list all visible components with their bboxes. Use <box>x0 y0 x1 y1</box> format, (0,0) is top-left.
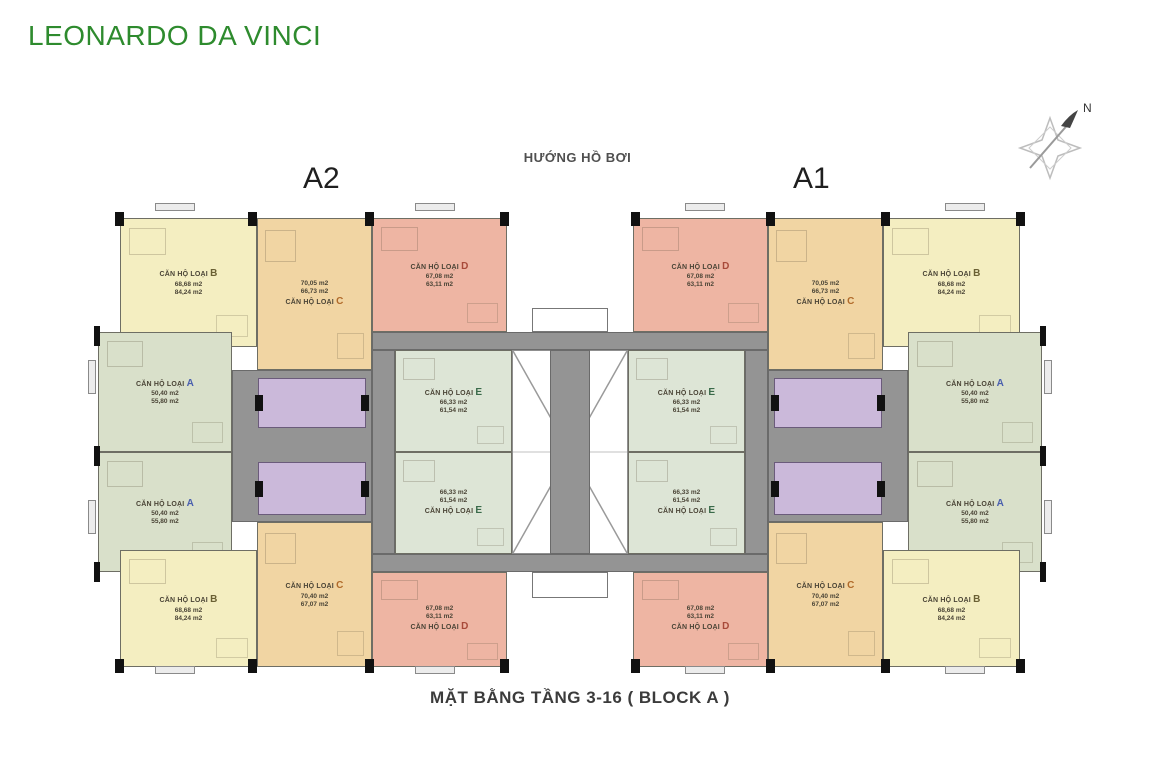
unit-a2-b-bot: CĂN HỘ LOẠI B 68,68 m2 84,24 m2 <box>120 550 257 667</box>
unit-area-1: 66,33 m2 <box>440 489 467 497</box>
unit-a2-d-top: CĂN HỘ LOẠI D 67,08 m2 63,11 m2 <box>372 218 507 332</box>
unit-area-2: 67,07 m2 <box>301 601 328 609</box>
unit-area-2: 84,24 m2 <box>938 289 965 297</box>
unit-type-label: CĂN HỘ LOẠI E <box>425 505 483 518</box>
core-right-upper <box>774 378 882 428</box>
unit-type-label: CĂN HỘ LOẠI C <box>796 580 854 593</box>
balcony-tab <box>415 203 455 211</box>
unit-area-2: 84,24 m2 <box>175 289 202 297</box>
unit-area-1: 50,40 m2 <box>961 510 988 518</box>
unit-area-2: 67,07 m2 <box>812 601 839 609</box>
core-left-upper <box>258 378 366 428</box>
unit-area-1: 70,40 m2 <box>301 593 328 601</box>
column-marker <box>881 659 890 673</box>
core-right-lower <box>774 462 882 515</box>
unit-type-label: CĂN HỘ LOẠI E <box>658 505 716 518</box>
unit-area-1: 50,40 m2 <box>151 510 178 518</box>
plan-caption: MẶT BẰNG TẦNG 3-16 ( BLOCK A ) <box>0 688 1160 708</box>
unit-type-label: CĂN HỘ LOẠI E <box>425 387 483 400</box>
unit-area-2: 84,24 m2 <box>175 615 202 623</box>
pool-direction-label: HƯỚNG HỒ BƠI <box>460 150 695 165</box>
bridge-room-bottom <box>532 572 608 598</box>
bridge-walkway <box>550 350 590 554</box>
unit-type-label: CĂN HỘ LOẠI B <box>922 268 980 281</box>
column-marker <box>1016 212 1025 226</box>
unit-a1-b-bot: CĂN HỘ LOẠI B 68,68 m2 84,24 m2 <box>883 550 1020 667</box>
unit-a1-e-bot: CĂN HỘ LOẠI E 66,33 m2 61,54 m2 <box>628 452 745 554</box>
unit-a1-d-bot: CĂN HỘ LOẠI D 67,08 m2 63,11 m2 <box>633 572 768 667</box>
column-marker <box>1040 446 1046 466</box>
column-marker <box>1040 562 1046 582</box>
core-left-lower <box>258 462 366 515</box>
unit-area-2: 63,11 m2 <box>687 613 714 621</box>
corridor-vertical-right <box>745 350 768 554</box>
unit-type-label: CĂN HỘ LOẠI D <box>671 621 729 634</box>
unit-a2-b-top: CĂN HỘ LOẠI B 68,68 m2 84,24 m2 <box>120 218 257 347</box>
unit-area-1: 67,08 m2 <box>687 273 714 281</box>
unit-area-1: 66,33 m2 <box>440 399 467 407</box>
unit-a2-e-top: CĂN HỘ LOẠI E 66,33 m2 61,54 m2 <box>395 350 512 452</box>
column-marker <box>500 659 509 673</box>
balcony-tab <box>945 203 985 211</box>
balcony-tab <box>88 360 96 394</box>
unit-area-2: 61,54 m2 <box>673 497 700 505</box>
unit-a1-d-top: CĂN HỘ LOẠI D 67,08 m2 63,11 m2 <box>633 218 768 332</box>
unit-type-label: CĂN HỘ LOẠI A <box>136 378 194 391</box>
column-marker <box>365 659 374 673</box>
compass-north-letter: N <box>1083 101 1092 115</box>
block-a1-label: A1 <box>793 162 830 196</box>
column-marker <box>766 659 775 673</box>
unit-area-1: 70,05 m2 <box>301 280 328 288</box>
unit-area-2: 55,80 m2 <box>151 518 178 526</box>
bridge-room-top <box>532 308 608 332</box>
column-marker <box>1040 326 1046 346</box>
unit-area-2: 61,54 m2 <box>440 407 467 415</box>
column-marker <box>500 212 509 226</box>
unit-type-label: CĂN HỘ LOẠI E <box>658 387 716 400</box>
unit-area-2: 61,54 m2 <box>673 407 700 415</box>
unit-a2-c-top: CĂN HỘ LOẠI C 70,05 m2 66,73 m2 <box>257 218 372 370</box>
unit-area-2: 63,11 m2 <box>426 281 453 289</box>
unit-type-label: CĂN HỘ LOẠI D <box>410 261 468 274</box>
unit-area-1: 67,08 m2 <box>426 605 453 613</box>
balcony-tab <box>155 203 195 211</box>
unit-area-1: 68,68 m2 <box>938 607 965 615</box>
column-marker <box>248 212 257 226</box>
unit-area-2: 55,80 m2 <box>151 398 178 406</box>
block-a2-label: A2 <box>303 162 340 196</box>
unit-a2-c-bot: CĂN HỘ LOẠI C 70,40 m2 67,07 m2 <box>257 522 372 667</box>
balcony-tab <box>1044 360 1052 394</box>
unit-area-1: 70,40 m2 <box>812 593 839 601</box>
unit-area-2: 84,24 m2 <box>938 615 965 623</box>
unit-area-1: 50,40 m2 <box>151 390 178 398</box>
unit-area-1: 70,05 m2 <box>812 280 839 288</box>
balcony-tab <box>685 666 725 674</box>
unit-area-1: 68,68 m2 <box>175 281 202 289</box>
unit-a1-a-top: CĂN HỘ LOẠI A 50,40 m2 55,80 m2 <box>908 332 1042 452</box>
unit-a2-e-bot: CĂN HỘ LOẠI E 66,33 m2 61,54 m2 <box>395 452 512 554</box>
unit-area-2: 55,80 m2 <box>961 518 988 526</box>
unit-type-label: CĂN HỘ LOẠI D <box>671 261 729 274</box>
unit-type-label: CĂN HỘ LOẠI B <box>159 268 217 281</box>
compass-icon: N <box>1000 96 1110 186</box>
unit-area-2: 66,73 m2 <box>812 288 839 296</box>
unit-a1-e-top: CĂN HỘ LOẠI E 66,33 m2 61,54 m2 <box>628 350 745 452</box>
unit-a2-d-bot: CĂN HỘ LOẠI D 67,08 m2 63,11 m2 <box>372 572 507 667</box>
column-marker <box>881 212 890 226</box>
unit-a1-c-bot: CĂN HỘ LOẠI C 70,40 m2 67,07 m2 <box>768 522 883 667</box>
column-marker <box>631 212 640 226</box>
unit-area-1: 66,33 m2 <box>673 489 700 497</box>
unit-a2-a-top: CĂN HỘ LOẠI A 50,40 m2 55,80 m2 <box>98 332 232 452</box>
unit-type-label: CĂN HỘ LOẠI C <box>285 296 343 309</box>
unit-type-label: CĂN HỘ LOẠI A <box>946 498 1004 511</box>
unit-area-2: 61,54 m2 <box>440 497 467 505</box>
unit-a1-b-top: CĂN HỘ LOẠI B 68,68 m2 84,24 m2 <box>883 218 1020 347</box>
unit-area-1: 68,68 m2 <box>175 607 202 615</box>
unit-type-label: CĂN HỘ LOẠI D <box>410 621 468 634</box>
unit-type-label: CĂN HỘ LOẠI B <box>922 594 980 607</box>
unit-a1-c-top: CĂN HỘ LOẠI C 70,05 m2 66,73 m2 <box>768 218 883 370</box>
page-title: LEONARDO DA VINCI <box>28 20 321 52</box>
unit-area-1: 67,08 m2 <box>426 273 453 281</box>
unit-area-1: 50,40 m2 <box>961 390 988 398</box>
unit-area-1: 67,08 m2 <box>687 605 714 613</box>
column-marker <box>94 326 100 346</box>
unit-area-2: 63,11 m2 <box>687 281 714 289</box>
unit-type-label: CĂN HỘ LOẠI A <box>946 378 1004 391</box>
balcony-tab <box>685 203 725 211</box>
balcony-tab <box>1044 500 1052 534</box>
column-marker <box>115 659 124 673</box>
unit-type-label: CĂN HỘ LOẠI B <box>159 594 217 607</box>
unit-type-label: CĂN HỘ LOẠI C <box>285 580 343 593</box>
balcony-tab <box>155 666 195 674</box>
unit-area-2: 55,80 m2 <box>961 398 988 406</box>
corridor-vertical-left <box>372 350 395 554</box>
column-marker <box>1016 659 1025 673</box>
unit-area-2: 63,11 m2 <box>426 613 453 621</box>
column-marker <box>766 212 775 226</box>
balcony-tab <box>88 500 96 534</box>
column-marker <box>248 659 257 673</box>
unit-area-1: 66,33 m2 <box>673 399 700 407</box>
unit-area-2: 66,73 m2 <box>301 288 328 296</box>
column-marker <box>94 562 100 582</box>
unit-type-label: CĂN HỘ LOẠI A <box>136 498 194 511</box>
unit-type-label: CĂN HỘ LOẠI C <box>796 296 854 309</box>
corridor-band-bottom <box>372 554 768 572</box>
column-marker <box>115 212 124 226</box>
column-marker <box>365 212 374 226</box>
floor-plan: CĂN HỘ LOẠI B 68,68 m2 84,24 m2 CĂN HỘ L… <box>95 210 1045 675</box>
balcony-tab <box>415 666 455 674</box>
balcony-tab <box>945 666 985 674</box>
column-marker <box>94 446 100 466</box>
unit-area-1: 68,68 m2 <box>938 281 965 289</box>
column-marker <box>631 659 640 673</box>
corridor-band-top <box>372 332 768 350</box>
